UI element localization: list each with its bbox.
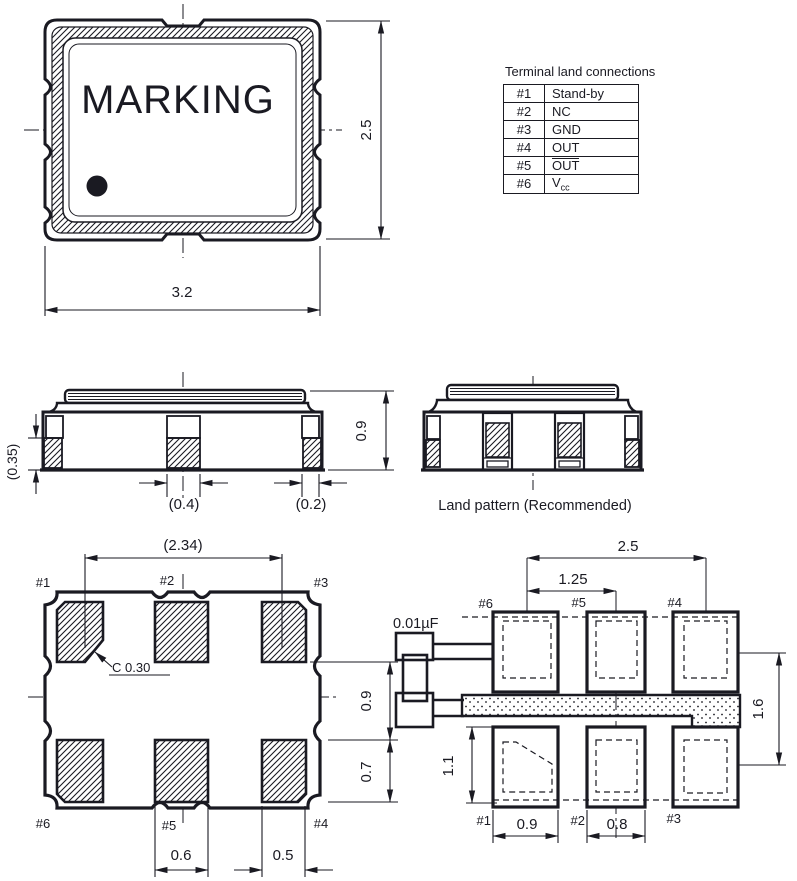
- dim-center-pad-width: 0.6: [155, 806, 208, 877]
- dim-land-height: 1.1: [440, 727, 497, 803]
- dim-edge-pad: (0.2): [274, 474, 347, 513]
- dim-row-gap-text: 0.9: [358, 691, 375, 712]
- terminal-right-metal: [303, 438, 321, 468]
- marking-text: MARKING: [81, 78, 275, 122]
- dim-metallization: (0.35): [4, 414, 44, 494]
- pin-number: #2: [504, 103, 545, 121]
- dim-outer-pitch: 2.5: [527, 538, 706, 558]
- pad-6: [57, 740, 103, 802]
- pin-function: OUT: [545, 139, 639, 157]
- dim-row-gap: 0.9 0.7: [310, 662, 398, 802]
- oscillator-dimension-drawing: MARKING 3.2 2.5: [0, 0, 797, 881]
- land-pattern: #6 #5 #4 #1 #2 #3 0.01µF 2.5 1.25 1.6: [393, 538, 786, 843]
- land5-label: #5: [572, 595, 586, 610]
- capacitor-value-label: 0.01µF: [393, 616, 439, 632]
- top-view: MARKING 3.2 2.5: [24, 4, 390, 316]
- land-4: [673, 612, 738, 692]
- table-row: #4 OUT: [504, 139, 639, 157]
- dim-land-width2: 0.8: [587, 810, 645, 843]
- lid-side: [447, 385, 618, 400]
- terminal-left-metal: [44, 438, 62, 468]
- dim-metallization-text: (0.35): [4, 444, 20, 481]
- bottom-pad2-label: #2: [160, 573, 174, 588]
- body-side: [424, 412, 641, 470]
- bottom-pad1-label: #1: [36, 575, 50, 590]
- pin-number: #1: [504, 85, 545, 103]
- pin-number: #4: [504, 139, 545, 157]
- terminal-center-metal: [167, 438, 200, 468]
- dim-width-text: 3.2: [172, 284, 193, 301]
- land2-label: #2: [571, 813, 585, 828]
- table-row: #3 GND: [504, 121, 639, 139]
- pin-function: GND: [545, 121, 639, 139]
- dim-row-pitch: 1.6: [750, 653, 779, 765]
- dim-0_6-text: 0.6: [171, 847, 192, 864]
- pin-function: NC: [545, 103, 639, 121]
- table-row: #2 NC: [504, 103, 639, 121]
- dim-pad-height-text: 0.7: [358, 762, 375, 783]
- dim-width-3_2: 3.2: [45, 246, 320, 316]
- ground-trace: [462, 695, 740, 727]
- pin-number: #6: [504, 175, 545, 194]
- land4-label: #4: [668, 595, 682, 610]
- dim-land-height-text: 1.1: [440, 756, 457, 777]
- land-2: [587, 727, 645, 807]
- side-view: Land pattern (Recommended): [421, 376, 644, 514]
- dim-row-pitch-text: 1.6: [750, 699, 767, 720]
- bottom-pad4-label: #4: [314, 816, 328, 831]
- dim-height-2_5: 2.5: [326, 21, 390, 239]
- pin-number: #5: [504, 157, 545, 175]
- land-3: [673, 727, 738, 807]
- pin-function-inverted: OUT: [545, 157, 639, 175]
- drawing-svg: MARKING 3.2 2.5: [0, 0, 797, 881]
- bottom-pad6-label: #6: [36, 816, 50, 831]
- land-pattern-caption: Land pattern (Recommended): [438, 498, 631, 514]
- dim-outer-pitch-text: 2.5: [618, 538, 639, 555]
- land1-label: #1: [477, 813, 491, 828]
- dim-pad-span-text: (2.34): [163, 537, 202, 554]
- table-title: Terminal land connections: [505, 64, 655, 79]
- dim-0_5-text: 0.5: [273, 847, 294, 864]
- side-terminal-left-metal: [426, 440, 440, 467]
- bottom-pad5-label: #5: [162, 818, 176, 833]
- dim-edge-pad-text: (0.2): [296, 496, 327, 513]
- table-row: #1 Stand-by: [504, 85, 639, 103]
- dim-land-width2-text: 0.8: [607, 816, 628, 833]
- land-1: [493, 727, 558, 807]
- dim-inner-pitch: 1.25: [527, 571, 616, 591]
- front-view: (0.35) 0.9 (0.4) (0.2): [4, 372, 394, 513]
- land-6: [493, 612, 558, 692]
- dim-inner-pitch-text: 1.25: [558, 571, 587, 588]
- pin-number: #3: [504, 121, 545, 139]
- dim-land-width1: 0.9: [493, 810, 558, 843]
- connections-table: #1 Stand-by #2 NC #3 GND #4 OUT #5 OUT: [503, 84, 639, 194]
- land3-label: #3: [667, 811, 681, 826]
- dim-land-width1-text: 0.9: [517, 816, 538, 833]
- pin-function-vcc: Vcc: [545, 175, 639, 194]
- pad-5: [155, 740, 208, 802]
- land6-label: #6: [479, 596, 493, 611]
- bottom-pad3-label: #3: [314, 575, 328, 590]
- bottom-view: #1 #2 #3 #6 #5 #4 (2.34) C 0.30: [28, 537, 398, 877]
- pad-3: [262, 602, 306, 662]
- dim-height-0_9-text: 0.9: [353, 421, 370, 442]
- terminal-connection-table: Terminal land connections #1 Stand-by #2…: [503, 64, 655, 194]
- chamfer-note-text: C 0.30: [112, 660, 150, 675]
- pin-function: Stand-by: [545, 85, 639, 103]
- table-row: #5 OUT: [504, 157, 639, 175]
- table-row: #6 Vcc: [504, 175, 639, 194]
- side-terminal-right-metal: [625, 440, 639, 467]
- pad-4: [262, 740, 306, 802]
- dim-center-pad-text: (0.4): [169, 496, 200, 513]
- pad-2: [155, 602, 208, 662]
- pin1-index-dot: [87, 176, 108, 197]
- dim-height-text: 2.5: [358, 120, 375, 141]
